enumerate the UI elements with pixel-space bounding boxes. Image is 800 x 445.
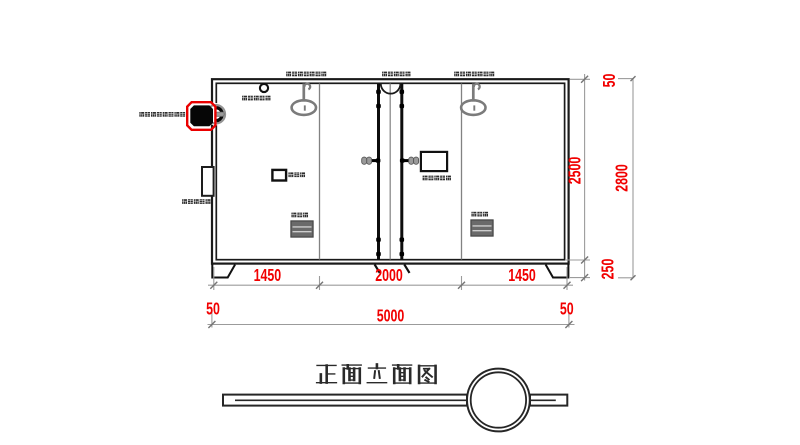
- svg-text:50: 50: [206, 300, 220, 320]
- svg-text:2800: 2800: [613, 164, 633, 192]
- svg-text:1450: 1450: [254, 266, 282, 286]
- svg-text:50: 50: [560, 299, 574, 319]
- svg-text:2500: 2500: [566, 157, 586, 185]
- svg-text:5000: 5000: [377, 306, 405, 326]
- svg-text:1450: 1450: [508, 266, 536, 286]
- svg-text:2000: 2000: [375, 266, 403, 286]
- svg-text:250: 250: [599, 259, 619, 280]
- svg-text:50: 50: [600, 74, 620, 88]
